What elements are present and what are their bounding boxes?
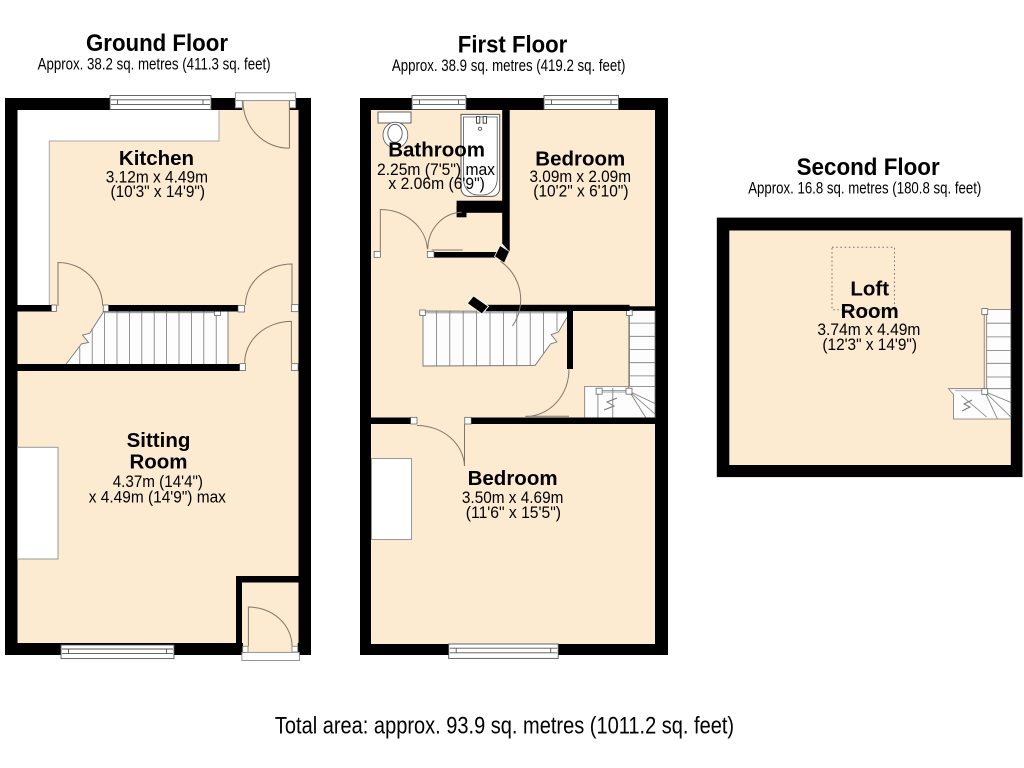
svg-text:Bedroom: Bedroom [468,467,558,490]
svg-text:(10'2" x 6'10"): (10'2" x 6'10") [533,182,628,201]
svg-text:First Floor: First Floor [458,32,568,59]
svg-text:(10'3" x 14'9"): (10'3" x 14'9") [111,182,206,201]
svg-text:Approx. 38.9 sq. metres (419.2: Approx. 38.9 sq. metres (419.2 sq. feet) [392,57,626,75]
svg-text:x 2.06m (6'9"): x 2.06m (6'9") [388,174,485,193]
svg-text:(11'6" x 15'5"): (11'6" x 15'5") [466,503,561,522]
svg-text:Total area: approx. 93.9 sq. m: Total area: approx. 93.9 sq. metres (101… [275,712,734,739]
svg-text:Sitting: Sitting [127,429,191,452]
svg-text:Loft: Loft [850,278,889,301]
svg-text:Approx. 38.2 sq. metres (411.3: Approx. 38.2 sq. metres (411.3 sq. feet) [38,55,271,73]
svg-text:x 4.49m (14'9") max: x 4.49m (14'9") max [89,488,227,507]
svg-text:Approx. 16.8 sq. metres (180.8: Approx. 16.8 sq. metres (180.8 sq. feet) [748,180,981,198]
svg-text:Second Floor: Second Floor [797,154,940,181]
svg-text:Ground Floor: Ground Floor [86,30,228,57]
svg-text:Room: Room [129,451,187,474]
svg-text:Bathroom: Bathroom [388,139,485,162]
svg-text:(12'3" x 14'9"): (12'3" x 14'9") [822,335,917,354]
